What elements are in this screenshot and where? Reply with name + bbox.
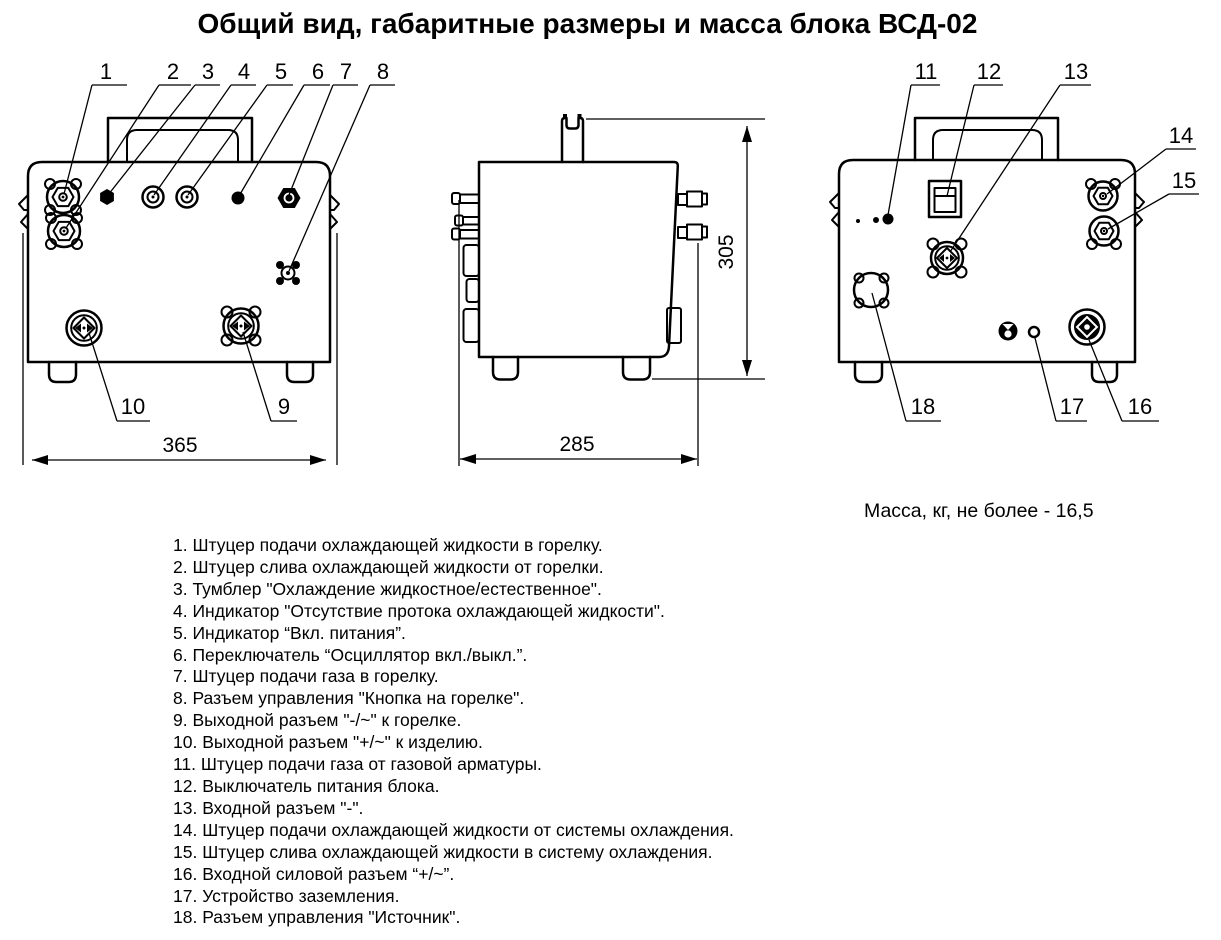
callout-18: 18 (911, 394, 935, 419)
front-callouts: 1 2 3 4 5 6 7 8 10 9 (64, 59, 395, 421)
side-left-stubs (452, 193, 479, 342)
callout-17: 17 (1060, 394, 1084, 419)
connector-input-power (1070, 310, 1105, 345)
front-latch-right (330, 195, 339, 229)
side-handle (562, 118, 583, 162)
legend-item-15: 15. Штуцер слива охлаждающей жидкости в … (173, 842, 734, 864)
side-foot-right (623, 357, 650, 380)
fitting-gas-inlet (856, 214, 894, 225)
fitting-coolant-supply-system (1086, 179, 1120, 211)
back-latch-left (830, 193, 839, 227)
front-foot-right (287, 362, 313, 382)
legend-item-5: 5. Индикатор “Вкл. питания”. (173, 623, 734, 645)
front-handle-grip (127, 130, 238, 162)
legend-item-9: 9. Выходной разъем "-/~" к горелке. (173, 710, 734, 732)
legend-item-16: 16. Входной силовой разъем “+/~”. (173, 864, 734, 886)
callout-12: 12 (977, 59, 1001, 84)
dim-front-width-label: 365 (162, 434, 197, 457)
fitting-coolant-drain-system (1087, 217, 1121, 250)
legend-item-1: 1. Штуцер подачи охлаждающей жидкости в … (173, 535, 734, 557)
callout-10: 10 (121, 394, 145, 419)
callout-11: 11 (915, 59, 938, 84)
callout-3: 3 (202, 59, 214, 84)
back-latch-right (1135, 193, 1144, 227)
callout-13: 13 (1064, 59, 1088, 84)
front-foot-left (49, 362, 76, 382)
switch-oscillator (232, 192, 245, 205)
fitting-coolant-supply-torch (45, 179, 81, 215)
callout-15: 15 (1172, 168, 1196, 193)
connector-control-source (854, 273, 889, 308)
callout-7: 7 (340, 59, 352, 84)
dim-height: 305 (586, 119, 765, 379)
grounding-device (999, 322, 1040, 341)
dim-side-depth: 285 (459, 200, 698, 466)
callout-2: 2 (167, 59, 179, 84)
side-view: 305 285 (452, 114, 765, 466)
legend-item-4: 4. Индикатор "Отсутствие протока охлажда… (173, 601, 734, 623)
legend-item-2: 2. Штуцер слива охлаждающей жидкости от … (173, 557, 734, 579)
legend-item-14: 14. Штуцер подачи охлаждающей жидкости о… (173, 820, 734, 842)
callout-1: 1 (100, 59, 112, 84)
back-callouts: 11 12 13 14 15 18 17 16 (872, 59, 1199, 421)
front-handle-outer (108, 118, 252, 162)
back-handle-outer (915, 118, 1058, 160)
legend-item-3: 3. Тумблер "Охлаждение жидкостное/естест… (173, 579, 734, 601)
indicator-power-on (177, 187, 198, 208)
connector-input-minus (928, 239, 967, 278)
back-view: 11 12 13 14 15 18 17 16 (830, 59, 1199, 421)
back-foot-left (855, 362, 882, 382)
mass-note: Масса, кг, не более - 16,5 (864, 500, 1094, 523)
legend-item-18: 18. Разъем управления "Источник". (173, 907, 734, 929)
connector-output-workpiece (67, 311, 102, 346)
callout-4: 4 (238, 59, 250, 84)
side-foot-left (493, 357, 518, 380)
indicator-no-flow (143, 187, 164, 208)
legend-item-7: 7. Штуцер подачи газа в горелку. (173, 666, 734, 688)
side-body (479, 162, 678, 357)
back-handle-grip (933, 130, 1042, 160)
legend-list: 1. Штуцер подачи охлаждающей жидкости в … (173, 535, 734, 929)
callout-9: 9 (278, 394, 290, 419)
callout-14: 14 (1169, 123, 1193, 148)
legend-item-11: 11. Штуцер подачи газа от газовой армату… (173, 754, 734, 776)
front-view: 1 2 3 4 5 6 7 8 10 9 365 (19, 59, 395, 465)
legend-item-17: 17. Устройство заземления. (173, 886, 734, 908)
callout-5: 5 (275, 59, 287, 84)
fitting-coolant-drain-torch (46, 213, 82, 249)
callout-8: 8 (377, 59, 389, 84)
dim-side-depth-label: 285 (559, 433, 594, 456)
dim-height-label: 305 (715, 234, 738, 269)
fitting-gas-to-torch (278, 188, 301, 208)
legend-item-6: 6. Переключатель “Осциллятор вкл./выкл.”… (173, 645, 734, 667)
connector-torch-button (276, 261, 300, 285)
technical-drawing: 1 2 3 4 5 6 7 8 10 9 365 (0, 0, 1221, 495)
legend-item-13: 13. Входной разъем "-". (173, 798, 734, 820)
callout-6: 6 (312, 59, 324, 84)
legend-item-12: 12. Выключатель питания блока. (173, 776, 734, 798)
toggle-cooling-mode (100, 189, 114, 205)
front-latch-left (19, 195, 28, 229)
legend-item-8: 8. Разъем управления "Кнопка на горелке"… (173, 688, 734, 710)
callout-16: 16 (1128, 394, 1152, 419)
legend-item-10: 10. Выходной разъем "+/~" к изделию. (173, 732, 734, 754)
power-switch (929, 181, 961, 217)
connector-output-torch (222, 307, 261, 346)
